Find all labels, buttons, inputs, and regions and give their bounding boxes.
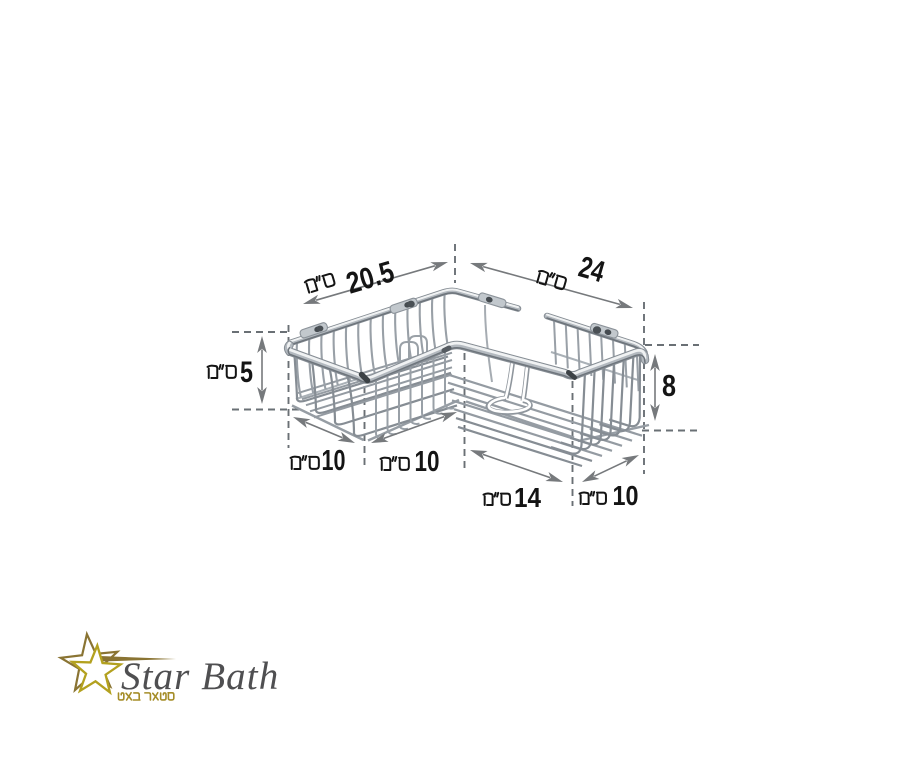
svg-text:10: 10 (415, 446, 440, 478)
svg-text:5: 5 (240, 356, 253, 389)
svg-text:14: 14 (514, 482, 541, 513)
svg-text:20.5: 20.5 (343, 255, 398, 300)
svg-text:10: 10 (322, 445, 346, 477)
svg-text:8: 8 (662, 368, 676, 403)
svg-text:24: 24 (575, 251, 608, 290)
svg-text:Star Bath: Star Bath (121, 655, 279, 698)
svg-text:10: 10 (613, 480, 639, 511)
